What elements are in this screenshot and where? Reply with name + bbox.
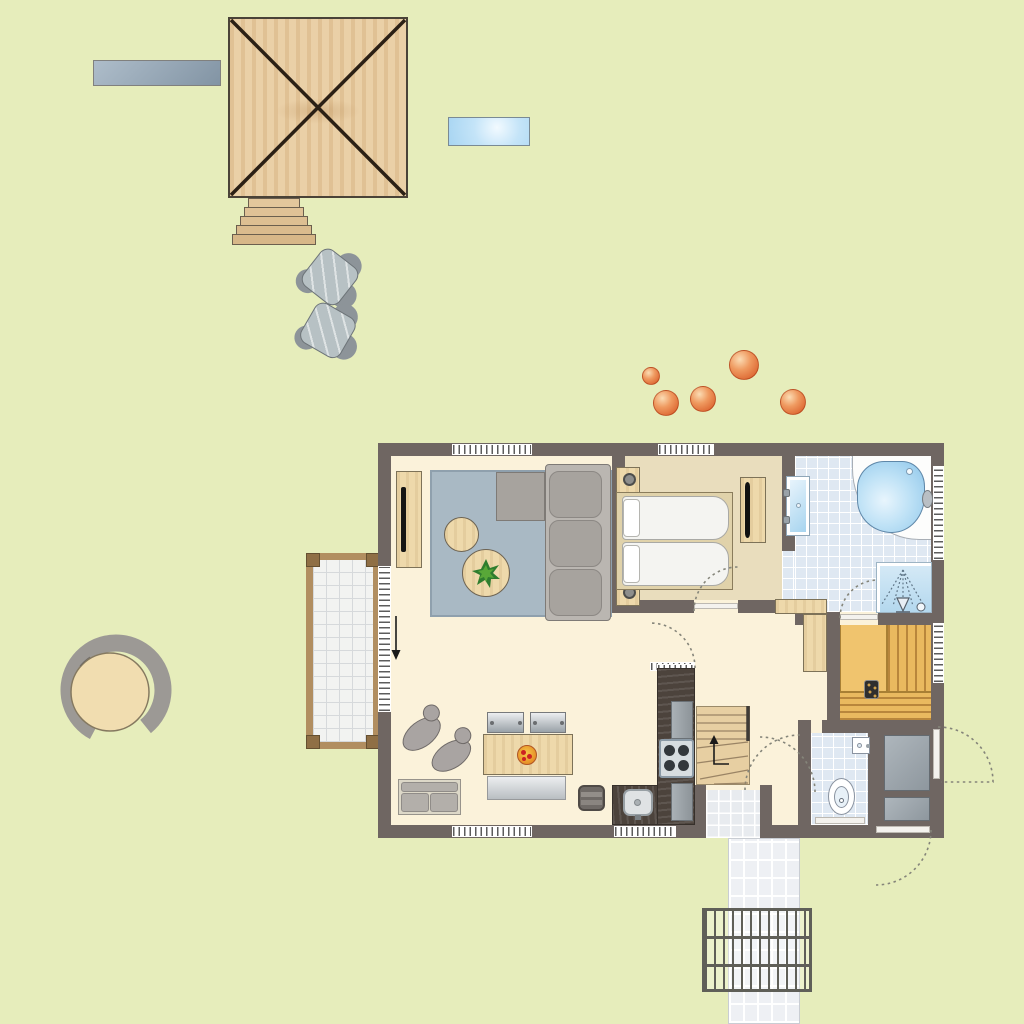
blue-bench <box>448 117 530 146</box>
corner-bathtub <box>857 461 925 533</box>
tv-screen <box>401 487 406 552</box>
floor-plan-scene <box>0 0 1024 1024</box>
double-washbasin <box>787 477 809 535</box>
wall-bathroom-bottom-b <box>878 612 931 625</box>
bathtub-drain <box>906 468 913 475</box>
round-tree-seat <box>50 626 180 756</box>
wooden-play-platform <box>228 17 408 198</box>
storage-door-leaf-bottom <box>876 826 930 833</box>
basin-tap <box>783 489 790 497</box>
dining-chair <box>530 712 566 733</box>
storage-unit-small <box>884 797 930 821</box>
loveseat <box>398 779 461 815</box>
fruit-bowl <box>517 745 537 765</box>
garden-bench <box>93 60 221 86</box>
foot-grate <box>702 908 812 992</box>
kitchen-sink <box>623 789 653 816</box>
garden-chair <box>293 293 369 369</box>
dining-chair <box>487 712 524 733</box>
sauna-bench-horizontal <box>840 691 931 720</box>
toilet-door-leaf <box>815 817 865 824</box>
window-living-bottom <box>452 826 532 837</box>
storage-right-door-arc <box>938 727 993 782</box>
winder-staircase <box>696 706 750 785</box>
storage-unit-large <box>884 735 930 791</box>
wall-sauna-bottom <box>822 720 944 733</box>
wall-toilet-left <box>798 720 811 825</box>
terrace-deck <box>306 553 380 749</box>
shrub-ball <box>642 367 660 385</box>
basin-tap <box>783 516 790 524</box>
shower <box>877 563 931 612</box>
coffee-table-small <box>444 517 479 552</box>
kitchen-appliance <box>671 783 693 821</box>
bathtub-faucet <box>922 490 933 508</box>
platform-stairs <box>232 198 316 246</box>
bathroom-door-leaf <box>840 614 878 620</box>
tv-cabinet <box>396 471 422 568</box>
bedroom-door-leaf <box>694 603 738 609</box>
shrub-ball <box>780 389 806 415</box>
window-sauna-right <box>933 623 944 683</box>
hall-cabinet-horizontal <box>775 599 827 614</box>
sofa-chaise <box>496 472 545 521</box>
coffee-table-large <box>462 549 510 597</box>
window-bedroom-top <box>658 444 714 455</box>
window-living-top <box>452 444 532 455</box>
wall-porch-right <box>760 785 772 825</box>
cooktop <box>659 739 694 778</box>
toilet-hand-basin <box>852 737 870 754</box>
wall-toilet-right <box>868 720 881 825</box>
storage-door-leaf-right <box>933 729 940 779</box>
porch-floor <box>706 790 760 838</box>
shrub-ball <box>690 386 716 412</box>
shrub-ball <box>653 390 679 416</box>
stool <box>578 785 605 811</box>
pillow <box>623 499 640 537</box>
sauna-bench-vertical <box>886 625 931 695</box>
toilet <box>828 778 855 815</box>
shrub-ball <box>729 350 759 380</box>
bedroom-dresser <box>740 477 766 543</box>
corner-sofa <box>545 464 611 621</box>
window-kitchen-bottom <box>614 826 676 837</box>
double-bed <box>616 492 733 590</box>
nightstand <box>616 467 640 493</box>
sauna-heater <box>864 680 879 699</box>
sliding-terrace-door <box>378 566 391 712</box>
bedroom-tv <box>745 482 750 538</box>
wall-sauna-left <box>827 612 840 720</box>
dining-bench <box>487 776 566 800</box>
hall-cabinet-vertical <box>803 614 827 672</box>
wall-porch-left <box>694 785 706 825</box>
pillow <box>623 545 640 583</box>
kitchen-appliance <box>671 701 693 739</box>
window-bathroom-right <box>933 466 944 560</box>
storage-bottom-door-arc <box>876 830 931 885</box>
